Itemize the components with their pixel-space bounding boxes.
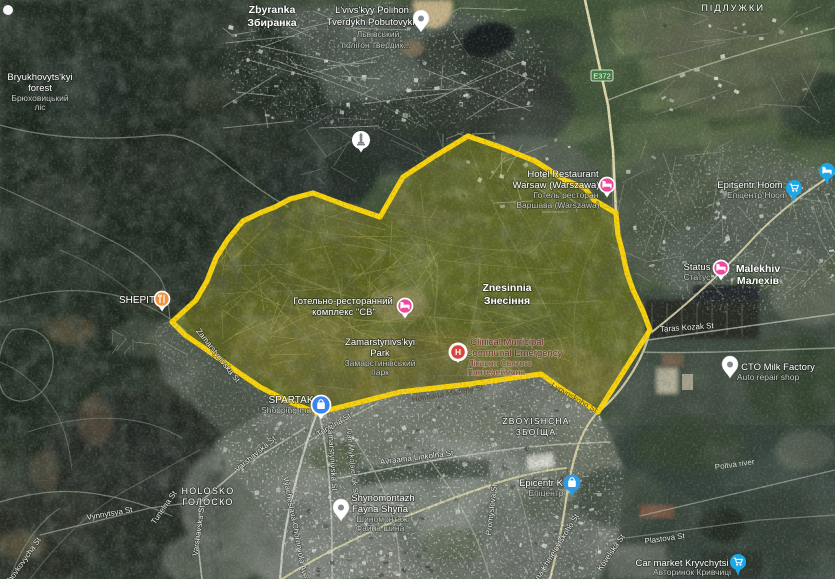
svg-text:Clinical Municipal: Clinical Municipal xyxy=(470,337,543,348)
svg-text:Варшава (Warszawa): Варшава (Warszawa) xyxy=(516,200,599,210)
svg-text:Файна шина: Файна шина xyxy=(356,523,405,533)
svg-text:ГОЛОСКО: ГОЛОСКО xyxy=(182,497,233,507)
svg-text:Малехів: Малехів xyxy=(737,275,780,287)
svg-text:Znesinnia: Znesinnia xyxy=(482,282,531,294)
svg-text:Zamarstynivs'kyi: Zamarstynivs'kyi xyxy=(345,337,415,348)
svg-text:ЗБОЇЩА: ЗБОЇЩА xyxy=(516,427,556,437)
svg-text:ліс: ліс xyxy=(34,102,46,112)
svg-text:Пантелеймона: Пантелеймона xyxy=(467,367,525,377)
svg-text:Shopping mall: Shopping mall xyxy=(261,405,315,415)
svg-text:Bryukhovyts'kyi: Bryukhovyts'kyi xyxy=(7,72,72,83)
svg-text:H: H xyxy=(455,347,461,357)
svg-text:Статус: Статус xyxy=(684,272,712,282)
svg-text:Збиранка: Збиранка xyxy=(247,17,296,29)
svg-text:L'vivs'kyy Polihon: L'vivs'kyy Polihon xyxy=(335,5,409,16)
svg-text:HOLOSKO: HOLOSKO xyxy=(182,486,235,496)
svg-text:Zbyranka: Zbyranka xyxy=(249,4,296,16)
svg-text:Епіцентр Hoom: Епіцентр Hoom xyxy=(727,190,787,200)
svg-text:Hotel Restaurant: Hotel Restaurant xyxy=(527,169,599,180)
svg-text:Знесіння: Знесіння xyxy=(484,295,530,307)
svg-text:E372: E372 xyxy=(593,72,611,81)
svg-text:Готель ресторан: Готель ресторан xyxy=(534,190,599,200)
svg-text:Авторинок Кривчиці: Авторинок Кривчиці xyxy=(653,567,731,577)
svg-text:ПІДЛУЖКИ: ПІДЛУЖКИ xyxy=(701,3,765,14)
svg-text:Auto repair shop: Auto repair shop xyxy=(737,372,800,382)
svg-text:Епіцентр: Епіцентр xyxy=(529,488,564,498)
svg-text:комплекс "СВ": комплекс "СВ" xyxy=(312,307,376,318)
svg-text:Tverdykh Pobutovykh: Tverdykh Pobutovykh xyxy=(326,17,417,28)
svg-text:парк: парк xyxy=(371,367,389,377)
svg-text:полігон твердих...: полігон твердих... xyxy=(341,40,410,50)
svg-text:Готельно-ресторанний: Готельно-ресторанний xyxy=(293,296,393,307)
svg-text:SHEPIT: SHEPIT xyxy=(119,295,155,306)
svg-text:Львівський: Львівський xyxy=(357,29,400,39)
svg-text:Shynomontazh: Shynomontazh xyxy=(351,493,414,504)
svg-text:ZBOYISHCHA: ZBOYISHCHA xyxy=(502,416,569,426)
svg-text:Malekhiv: Malekhiv xyxy=(736,263,781,275)
